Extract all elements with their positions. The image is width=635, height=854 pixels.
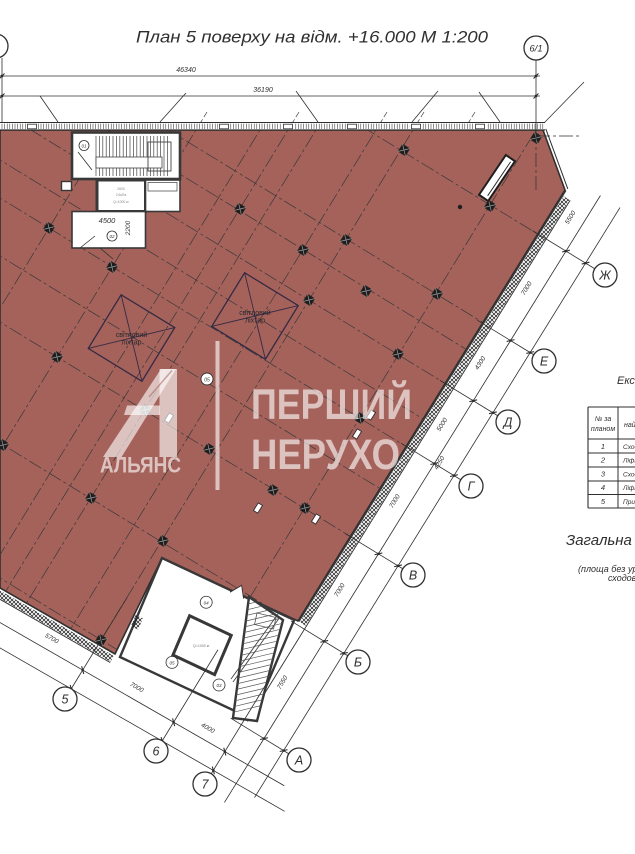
svg-text:Приміщ: Приміщ [623, 498, 635, 506]
svg-text:світловий: світловий [116, 331, 148, 339]
svg-text:В: В [409, 569, 417, 583]
svg-text:2200: 2200 [125, 220, 132, 236]
svg-text:Д: Д [502, 416, 513, 430]
svg-text:Загальна площа: Загальна площа [566, 532, 635, 549]
svg-text:36190: 36190 [253, 87, 273, 94]
svg-text:Q=1000 кг: Q=1000 кг [193, 644, 210, 648]
svg-text:Q=1000 кг: Q=1000 кг [113, 200, 130, 204]
svg-text:ПЕРШИЙ: ПЕРШИЙ [251, 380, 412, 429]
svg-text:2600: 2600 [117, 187, 125, 191]
svg-text:05: 05 [169, 660, 175, 665]
svg-text:1: 1 [601, 442, 605, 451]
svg-text:Б: Б [354, 656, 362, 670]
svg-text:7: 7 [202, 778, 210, 792]
svg-text:4500: 4500 [99, 216, 117, 225]
svg-text:Сходова: Сходова [623, 470, 635, 478]
svg-text:ліхтар: ліхтар [122, 339, 142, 347]
svg-text:найменування: найменування [624, 421, 635, 429]
svg-text:План 5 поверху на відм. +16.00: План 5 поверху на відм. +16.000 М 1:200 [136, 29, 489, 47]
svg-text:Експлікація: Експлікація [617, 375, 635, 387]
svg-text:Ж: Ж [598, 269, 612, 283]
svg-text:Ліфт: Ліфт [622, 484, 635, 492]
svg-text:Г: Г [468, 480, 476, 494]
svg-text:Е: Е [540, 355, 549, 369]
svg-text:ліхтар: ліхтар [245, 317, 265, 325]
svg-text:04: 04 [204, 600, 210, 605]
svg-text:2: 2 [600, 456, 606, 465]
svg-text:03: 03 [216, 683, 222, 688]
svg-text:НЕРУХО: НЕРУХО [251, 431, 400, 479]
svg-text:4: 4 [601, 483, 605, 492]
svg-text:№ за: № за [595, 416, 612, 423]
svg-text:01: 01 [81, 144, 87, 149]
svg-text:А: А [294, 754, 303, 768]
svg-text:46340: 46340 [176, 67, 196, 74]
svg-text:Ліфт: Ліфт [622, 457, 635, 465]
svg-text:2.6кПа: 2.6кПа [116, 193, 127, 197]
svg-text:світловий: світловий [239, 309, 271, 317]
svg-text:6/1: 6/1 [529, 43, 542, 54]
svg-text:05: 05 [204, 378, 210, 384]
svg-text:Сходова: Сходова [623, 443, 635, 451]
svg-text:планом: планом [591, 426, 615, 433]
svg-text:АЛЬЯНС: АЛЬЯНС [100, 453, 181, 478]
svg-text:6: 6 [153, 745, 160, 759]
svg-text:5: 5 [62, 693, 69, 707]
svg-text:02: 02 [109, 234, 115, 239]
svg-text:сходових: сходових [608, 573, 635, 583]
